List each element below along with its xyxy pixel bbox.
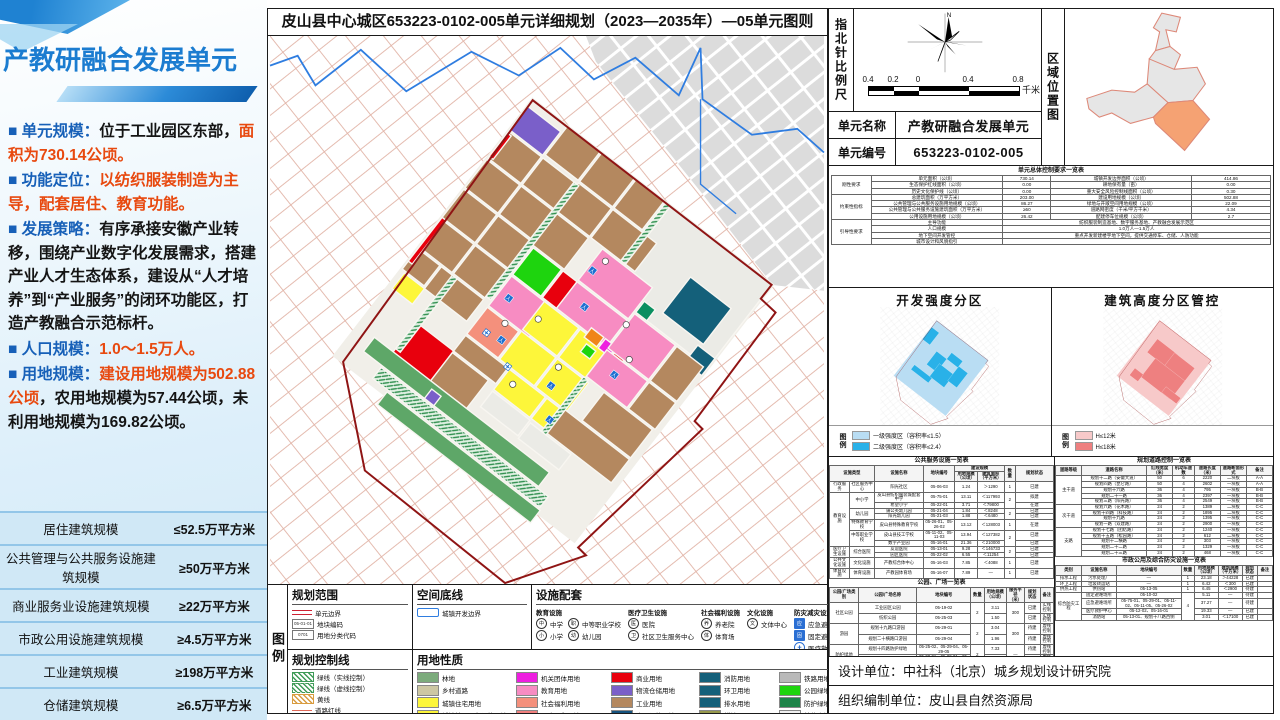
体育场-icon: 体体育场 — [701, 630, 740, 641]
legend-landuse-header: 用地性质 — [417, 652, 853, 670]
table-row: 公共文化设施文化设施产教综合体中心05-16-037.85＜40881已建 — [830, 558, 1054, 568]
legend-facility-cell: 设施配套 教育设施中中学职中等职业学校小小学幼幼儿园医疗卫生设施医医院卫社区卫生… — [532, 585, 857, 649]
roads-table: 道路等级道路名称红线宽度（米）机动车道数道路长度（米）道路断面形式备注主干道规划… — [1055, 465, 1273, 557]
legend-baseline-cell: 空间底线 城镇开发边界 — [413, 585, 532, 649]
scale-table-row: 工业建筑规模≥198万平方米 — [0, 654, 267, 687]
landuse-legend-item: 消防用地 — [699, 672, 777, 683]
legend-item: 0701用地分类代码 — [292, 629, 408, 640]
north-arrow-icon: N — [870, 10, 1020, 74]
map-legend: 图例 规划范围 单元边界05-01-01地块编码0701用地分类代码 空间底线 … — [268, 584, 827, 713]
unit-name-value: 产教研融合发展单元 — [896, 112, 1041, 138]
小学-icon: 小小学 — [536, 630, 563, 641]
legend-item: 绿线（实线控制） — [292, 672, 408, 683]
landuse-legend-item: 林地 — [417, 672, 514, 683]
table-row: 道路等级道路名称红线宽度（米）机动车道数道路长度（米）道路断面形式备注 — [1056, 466, 1273, 476]
中学-icon: 中中学 — [536, 618, 563, 629]
bullet-population: ■ 人口规模：1.0～1.5万人。 — [8, 338, 260, 362]
intensity-zone-panel: 开发强度分区 图例 一级强度区（容积率≤1.5）二级强度区（容积率≤2.4） — [829, 288, 1052, 456]
legend-item: 绿线（虚线控制） — [292, 683, 408, 694]
compass-and-scalebar: N 0.4 0.2 0 0.4 0.8 千米 — [854, 9, 1041, 111]
scalebar — [868, 86, 1020, 96]
table-row: 城市设计和风貌指引 — [832, 238, 1271, 244]
table-row: 体育设施体育设施产教园体育场05-16-077.89—1已建 — [830, 568, 1054, 578]
building-scale-table: 居住建筑规模≤52.5万平方米公共管理与公共服务设施建筑规模≥50万平方米商业服… — [0, 511, 267, 720]
unit-number-row: 单元编号 653223-0102-005 — [829, 138, 1041, 165]
幼儿园-icon: 幼幼儿园 — [568, 630, 621, 641]
bullet-strategy: ■ 发展策略：有序承接安徽产业转移，围绕产业数字化发展需求，搭建产业人才生态体系… — [8, 218, 260, 336]
table-row: 中等职业学校皮山县技工学校05-11-02、05-11-0313.94＜1273… — [830, 530, 1054, 540]
scale-table-row: 居住建筑规模≤52.5万平方米 — [0, 511, 267, 544]
table-row: 设施类型设施名称地块编号建设规模数量规划状态 — [830, 466, 1054, 472]
roads-table-caption: 规划道路控制一览表 — [1055, 457, 1273, 465]
table-row: 应急避难场所05-75-01、05-29-01、05-11-02、05-11-0… — [1056, 598, 1273, 608]
landuse-legend-item: 环卫用地 — [699, 685, 777, 696]
facility-group: 社会福利设施养养老院体体育场 — [701, 607, 740, 649]
scale-table-row: 商业服务业设施建筑规模≥22万平方米 — [0, 588, 267, 621]
landuse-legend-item: 城镇住宅用地 — [417, 697, 514, 708]
legend-baseline-header: 空间底线 — [417, 587, 527, 605]
table-row: 特殊教育学校皮山县特殊教育学校05-26-01、05-26-0213.12＜12… — [830, 520, 1054, 530]
municipal-table-caption: 市政公用及综合防灾设施一览表 — [1055, 557, 1273, 565]
landuse-legend-item: 耕地 — [699, 710, 777, 713]
legend-facility-header: 设施配套 — [536, 587, 853, 605]
landuse-legend-item: 教育用地 — [516, 685, 609, 696]
unit-name-row: 单元名称 产教研融合发展单元 — [829, 111, 1041, 138]
legend-control-cell: 规划控制线 绿线（实线控制）绿线（虚线控制）黄线道路红线 — [288, 650, 413, 714]
unit-control-table: 刚性要求单元面积（公顷）730.14城镇开发边界面积（公顷）414.86生态保护… — [831, 175, 1271, 245]
legend-item: 黄线 — [292, 694, 408, 705]
intensity-zone-map — [829, 307, 1051, 425]
legend-scope-cell: 规划范围 单元边界05-01-01地块编码0701用地分类代码 — [288, 585, 413, 649]
height-zone-map — [1052, 307, 1274, 425]
landuse-legend-item: 水工设施用地 — [611, 710, 697, 713]
医院-icon: 医医院 — [628, 618, 694, 629]
table-row: 行政服务社区服务中心阳光社区05-06-031.24＞12901已建 — [830, 482, 1054, 492]
development-boundary-swatch — [417, 608, 439, 617]
table-row: 社区公园工业园区公园05-19-0223.11300已建实线控制 — [830, 603, 1054, 613]
scale-table-row: 公共管理与公共服务设施建筑规模≥50万平方米 — [0, 544, 267, 588]
control-line-swatch — [292, 694, 314, 704]
landuse-legend-item: 工业用地 — [611, 697, 697, 708]
landuse-legend-item: 城镇社区服务设施用地 — [417, 710, 514, 713]
landuse-legend-item: 社会福利用地 — [516, 697, 609, 708]
landuse-legend-item: 机关团体用地 — [516, 672, 609, 683]
unit-control-table-section: 单元总体控制要求一览表 刚性要求单元面积（公顷）730.14城镇开发边界面积（公… — [829, 166, 1273, 288]
unit-boundary-swatch — [292, 610, 312, 615]
landuse-legend-item: 商业用地 — [611, 672, 697, 683]
code-box-swatch: 05-01-01 — [292, 619, 314, 629]
organizing-unit: 组织编制单位：皮山县自然资源局 — [829, 686, 1273, 714]
table-row: 教育设施中小学皮山县纺织服装城配套中学05-75-0113.11＜1179932… — [830, 492, 1054, 502]
title-block-panel: 指北针比例尺 N 0.4 — [828, 8, 1274, 714]
landuse-legend-item: 医疗卫生用地 — [516, 710, 609, 713]
table-row: 游园规划十九路口游园05-29-0123.04300待建虚线控制 — [830, 624, 1054, 634]
main-plan-map: 人人人人人人人 — [268, 36, 826, 584]
parks-table: 公园/广场类别公园/广场名称地块编号数量用地规模（公顷）服务半径（米）规划状态备… — [829, 587, 1054, 656]
table-row: 类别设施名称地块编号数量用地规模（公顷）建筑规模（平方米）规划状态备注 — [1056, 565, 1273, 575]
landuse-legend-item: 物流仓储用地 — [611, 685, 697, 696]
legend-item: 道路红线 — [292, 705, 408, 714]
code-box-swatch: 0701 — [292, 630, 314, 640]
legend-landuse-cell: 用地性质 林地机关团体用地商业用地消防用地铁路用地乡村道路教育用地物流仓储用地环… — [413, 650, 857, 714]
legend-scope-header: 规划范围 — [292, 587, 408, 605]
landuse-legend-item: 排水用地 — [699, 697, 777, 708]
zone-legend-item: H≤18米 — [1075, 442, 1116, 451]
zone-legend-item: 一级强度区（容积率≤1.5） — [852, 431, 945, 440]
scale-table-row: 仓储建筑规模≥6.5万平方米 — [0, 687, 267, 720]
legend-control-header: 规划控制线 — [292, 652, 408, 670]
文体中心-icon: 文文体中心 — [747, 618, 787, 629]
table-row: 规划二十三路242468一块板C-C — [1056, 550, 1273, 556]
scale-table-row: 市政公用设施建筑规模≥4.5万平方米 — [0, 621, 267, 654]
design-unit: 设计单位：中社科（北京）城乡规划设计研究院 — [829, 657, 1273, 686]
社区卫生服务中心-icon: 卫社区卫生服务中心 — [628, 630, 694, 641]
bullet-land: ■ 用地规模：建设用地规模为502.88公顷，农用地规模为57.44公顷，未利用… — [8, 363, 260, 434]
sheet-title: 皮山县中心城区653223-0102-005单元详细规划（2023—2035年）… — [268, 9, 827, 36]
info-sidebar: 产教研融合发展单元 ■ 单元规模：位于工业园区东部，面积为730.14公顷。 ■… — [0, 0, 267, 720]
plan-sheet-panel: 皮山县中心城区653223-0102-005单元详细规划（2023—2035年）… — [267, 8, 828, 714]
unit-number-value: 653223-0102-005 — [896, 139, 1041, 165]
zone-legend-item: H≤12米 — [1075, 431, 1116, 440]
parks-table-caption: 公园、广场一览表 — [829, 579, 1054, 587]
facility-group: 教育设施中中学职中等职业学校小小学幼幼儿园 — [536, 607, 621, 649]
control-line-swatch — [292, 672, 314, 682]
facility-group: 文化设施文文体中心 — [747, 607, 787, 649]
table-row: 防护绿地规划十四路防护绿地05-25-02、05-29-04、05-29-052… — [830, 645, 1054, 655]
title-underline-bar — [56, 86, 257, 102]
region-map-label: 区域位置图 — [1042, 9, 1065, 165]
legend-item: 05-01-01地块编码 — [292, 618, 408, 629]
table-row: 公园/广场类别公园/广场名称地块编号数量用地规模（公顷）服务半径（米）规划状态备… — [830, 588, 1054, 603]
bullet-function: ■ 功能定位：以纺织服装制造为主导，配套居住、教育功能。 — [8, 169, 260, 216]
table-row: 消防站05-13-01、规划十八路西侧3.01＜17100已建 — [1056, 614, 1273, 620]
unit-description: ■ 单元规模：位于工业园区东部，面积为730.14公顷。 ■ 功能定位：以纺织服… — [8, 118, 260, 436]
public-table-caption: 公共服务设施一览表 — [829, 457, 1054, 465]
legend-item: 城镇开发边界 — [417, 607, 527, 618]
中等职业学校-icon: 职中等职业学校 — [568, 618, 621, 629]
compass-scale-label: 指北针比例尺 — [829, 9, 854, 111]
landuse-legend-item: 乡村道路 — [417, 685, 514, 696]
unit-title: 产教研融合发展单元 — [3, 40, 265, 77]
control-line-swatch — [292, 710, 312, 711]
region-location-map — [1065, 9, 1273, 165]
facility-group: 医疗卫生设施医医院卫社区卫生服务中心 — [628, 607, 694, 649]
municipal-table: 类别设施名称地块编号数量用地规模（公顷）建筑规模（平方米）规划状态备注排水工程污… — [1055, 565, 1273, 621]
legend-side-label: 图例 — [268, 585, 288, 713]
zone-legend-item: 二级强度区（容积率≤2.4） — [852, 442, 945, 451]
scalebar-labels: 0.4 0.2 0 0.4 0.8 — [868, 75, 1018, 84]
control-line-swatch — [292, 683, 314, 693]
svg-text:N: N — [947, 12, 952, 19]
legend-item: 单元边界 — [292, 607, 408, 618]
ctrl-table-caption: 单元总体控制要求一览表 — [831, 167, 1271, 175]
public-facility-table: 设施类型设施名称地块编号建设规模数量规划状态用地规模（公顷）建筑面积（平方米）行… — [829, 465, 1054, 579]
main-plan-map-area: 人人人人人人人 — [268, 36, 827, 584]
bullet-unit-scale: ■ 单元规模：位于工业园区东部，面积为730.14公顷。 — [8, 120, 260, 167]
scalebar-unit: 千米 — [1022, 83, 1040, 96]
height-zone-panel: 建筑高度分区管控 图例 H≤12米H≤18米 — [1052, 288, 1274, 456]
养老院-icon: 养养老院 — [701, 618, 740, 629]
